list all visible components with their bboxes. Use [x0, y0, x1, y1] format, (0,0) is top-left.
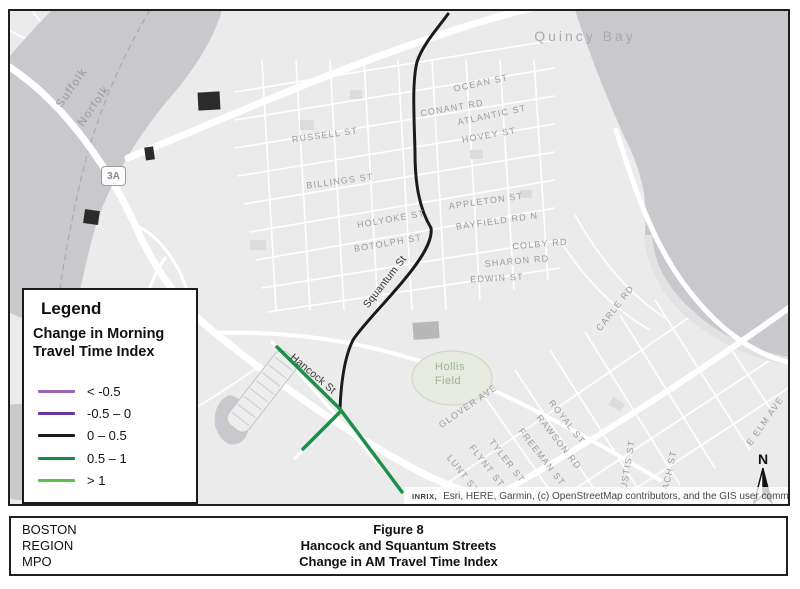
map-frame: OCEAN STCONANT RDATLANTIC STHOVEY STRUSS…	[8, 9, 790, 506]
figure-metric: Change in AM Travel Time Index	[11, 554, 786, 570]
north-label: N	[758, 451, 768, 467]
legend-item: -0.5 – 0	[24, 402, 196, 424]
legend-line-swatch	[38, 390, 75, 393]
legend-subtitle: Change in Morning Travel Time Index	[33, 325, 193, 361]
legend-item: < -0.5	[24, 380, 196, 402]
legend-item: 0 – 0.5	[24, 425, 196, 447]
legend-item-label: < -0.5	[87, 384, 121, 399]
figure-number: Figure 8	[11, 522, 786, 538]
legend-item-label: 0.5 – 1	[87, 451, 127, 466]
area-label: Field	[435, 375, 461, 387]
water-label: Quincy Bay	[534, 28, 636, 44]
legend-box: Legend Change in Morning Travel Time Ind…	[22, 288, 198, 504]
legend-item-label: > 1	[87, 473, 105, 488]
caption-bar: BOSTON REGION MPO Figure 8 Hancock and S…	[9, 516, 788, 576]
legend-item: 0.5 – 1	[24, 447, 196, 469]
attribution-bar: INRIX, Esri, HERE, Garmin, (c) OpenStree…	[404, 487, 788, 504]
route-squantum-st-0-05	[340, 14, 448, 409]
figure-title: Figure 8 Hancock and Squantum Streets Ch…	[11, 522, 786, 570]
attribution-text: Esri, HERE, Garmin, (c) OpenStreetMap co…	[443, 491, 788, 502]
area-label: Hollis	[435, 361, 465, 373]
legend-line-swatch	[38, 457, 75, 460]
legend-item-label: 0 – 0.5	[87, 428, 127, 443]
legend-title: Legend	[41, 299, 196, 319]
map-canvas: OCEAN STCONANT RDATLANTIC STHOVEY STRUSS…	[10, 11, 788, 504]
figure-page: OCEAN STCONANT RDATLANTIC STHOVEY STRUSS…	[0, 0, 800, 589]
legend-line-swatch	[38, 479, 75, 482]
figure-subject: Hancock and Squantum Streets	[11, 538, 786, 554]
route-shield-3a: 3A	[101, 166, 126, 186]
attribution-inrix: INRIX,	[412, 492, 437, 501]
legend-item-label: -0.5 – 0	[87, 406, 131, 421]
legend-item: > 1	[24, 470, 196, 492]
legend-line-swatch	[38, 434, 75, 437]
legend-line-swatch	[38, 412, 75, 415]
legend-items: < -0.5 -0.5 – 0 0 – 0.5 0.5 – 1 > 1	[24, 380, 196, 492]
